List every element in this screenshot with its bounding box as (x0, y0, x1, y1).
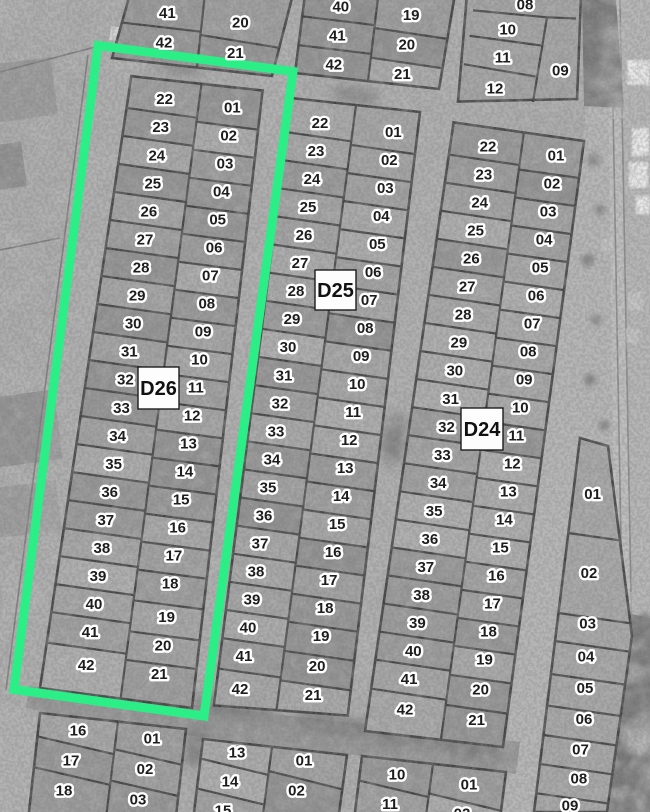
svg-text:14: 14 (222, 773, 239, 790)
svg-text:16: 16 (325, 544, 342, 561)
svg-text:26: 26 (296, 227, 313, 244)
svg-text:05: 05 (577, 680, 594, 697)
svg-text:24: 24 (304, 171, 321, 188)
svg-text:10: 10 (389, 766, 406, 783)
svg-text:15: 15 (329, 516, 346, 533)
svg-text:42: 42 (232, 681, 249, 698)
svg-text:01: 01 (224, 99, 241, 116)
svg-text:10: 10 (499, 22, 516, 39)
svg-text:37: 37 (417, 559, 434, 576)
svg-text:20: 20 (472, 682, 489, 699)
svg-text:06: 06 (365, 264, 382, 281)
svg-text:03: 03 (540, 204, 557, 221)
svg-text:D24: D24 (464, 419, 502, 441)
svg-text:10: 10 (191, 351, 208, 368)
svg-text:04: 04 (213, 183, 230, 200)
svg-text:33: 33 (113, 400, 130, 417)
svg-text:31: 31 (121, 344, 138, 361)
svg-text:07: 07 (524, 316, 541, 333)
svg-text:25: 25 (467, 223, 484, 240)
svg-text:05: 05 (209, 211, 226, 228)
svg-text:11: 11 (495, 50, 511, 67)
svg-text:01: 01 (548, 148, 565, 165)
svg-text:32: 32 (117, 372, 134, 389)
svg-text:22: 22 (312, 115, 329, 132)
svg-text:38: 38 (413, 587, 430, 604)
svg-text:15: 15 (215, 802, 232, 812)
svg-text:21: 21 (468, 712, 485, 729)
svg-text:41: 41 (236, 648, 253, 665)
svg-text:40: 40 (240, 620, 257, 637)
svg-text:24: 24 (471, 194, 488, 211)
svg-text:04: 04 (536, 232, 553, 249)
svg-text:39: 39 (409, 615, 426, 632)
svg-text:17: 17 (321, 572, 338, 589)
svg-text:39: 39 (244, 592, 261, 609)
svg-text:29: 29 (129, 288, 146, 305)
svg-text:24: 24 (148, 147, 165, 164)
svg-text:16: 16 (169, 519, 186, 536)
svg-text:13: 13 (500, 484, 517, 501)
svg-text:15: 15 (173, 491, 190, 508)
svg-text:23: 23 (476, 166, 493, 183)
svg-text:18: 18 (480, 624, 497, 641)
svg-text:17: 17 (63, 752, 80, 769)
svg-text:34: 34 (109, 428, 126, 445)
svg-text:09: 09 (353, 348, 370, 365)
svg-text:41: 41 (401, 671, 418, 688)
svg-text:02: 02 (288, 782, 305, 799)
svg-text:13: 13 (180, 435, 197, 452)
svg-text:10: 10 (512, 400, 529, 417)
svg-text:20: 20 (155, 637, 172, 654)
svg-text:17: 17 (484, 596, 501, 613)
svg-text:03: 03 (130, 791, 147, 808)
svg-text:37: 37 (252, 536, 269, 553)
svg-text:11: 11 (345, 404, 361, 421)
svg-text:13: 13 (337, 460, 354, 477)
svg-text:37: 37 (97, 512, 114, 529)
svg-text:01: 01 (461, 776, 478, 793)
svg-text:08: 08 (571, 770, 588, 787)
svg-text:34: 34 (264, 451, 281, 468)
svg-text:02: 02 (544, 176, 561, 193)
svg-text:09: 09 (562, 797, 579, 812)
svg-text:29: 29 (284, 311, 301, 328)
svg-text:08: 08 (520, 344, 537, 361)
svg-text:35: 35 (260, 480, 277, 497)
svg-text:18: 18 (162, 575, 179, 592)
svg-text:03: 03 (377, 180, 394, 197)
svg-text:01: 01 (144, 730, 161, 747)
svg-text:01: 01 (385, 124, 402, 141)
svg-text:33: 33 (268, 423, 285, 440)
svg-text:02: 02 (454, 805, 471, 812)
svg-text:31: 31 (442, 391, 459, 408)
svg-text:21: 21 (227, 45, 244, 62)
svg-text:02: 02 (137, 761, 154, 778)
svg-text:02: 02 (581, 565, 598, 582)
svg-text:38: 38 (248, 564, 265, 581)
svg-text:07: 07 (572, 741, 589, 758)
svg-text:34: 34 (430, 475, 447, 492)
svg-text:31: 31 (276, 367, 293, 384)
svg-text:27: 27 (137, 232, 154, 249)
svg-text:16: 16 (488, 568, 505, 585)
svg-text:03: 03 (579, 616, 596, 633)
svg-text:35: 35 (105, 456, 122, 473)
svg-text:09: 09 (516, 372, 533, 389)
svg-text:40: 40 (332, 0, 349, 16)
svg-text:40: 40 (405, 643, 422, 660)
svg-text:38: 38 (94, 540, 111, 557)
svg-text:32: 32 (272, 395, 289, 412)
svg-text:42: 42 (325, 56, 342, 73)
svg-text:21: 21 (394, 66, 411, 83)
svg-text:22: 22 (156, 91, 173, 108)
svg-text:30: 30 (446, 363, 463, 380)
svg-text:21: 21 (305, 687, 322, 704)
svg-text:26: 26 (141, 203, 158, 220)
svg-text:42: 42 (78, 657, 95, 674)
svg-text:05: 05 (369, 236, 386, 253)
svg-text:28: 28 (288, 283, 305, 300)
svg-text:04: 04 (373, 208, 390, 225)
svg-text:12: 12 (341, 432, 358, 449)
svg-text:08: 08 (517, 0, 534, 14)
svg-text:D26: D26 (140, 378, 177, 400)
svg-text:26: 26 (463, 251, 480, 268)
svg-text:21: 21 (151, 666, 168, 683)
svg-text:42: 42 (156, 35, 173, 52)
svg-text:40: 40 (86, 596, 103, 613)
svg-text:36: 36 (422, 531, 439, 548)
svg-text:02: 02 (220, 127, 237, 144)
svg-text:19: 19 (313, 628, 330, 645)
svg-text:03: 03 (217, 155, 234, 172)
svg-text:02: 02 (381, 152, 398, 169)
svg-text:14: 14 (177, 463, 194, 480)
svg-text:33: 33 (434, 447, 451, 464)
svg-text:D25: D25 (317, 280, 354, 302)
svg-text:20: 20 (398, 37, 415, 54)
svg-text:27: 27 (459, 279, 476, 296)
svg-text:41: 41 (329, 28, 346, 45)
svg-text:36: 36 (256, 508, 273, 525)
svg-text:09: 09 (195, 323, 212, 340)
svg-text:12: 12 (184, 407, 201, 424)
svg-text:42: 42 (397, 701, 414, 718)
svg-text:13: 13 (229, 744, 246, 761)
svg-text:19: 19 (158, 609, 175, 626)
svg-text:39: 39 (90, 568, 107, 585)
svg-text:41: 41 (82, 624, 99, 641)
svg-text:11: 11 (508, 428, 524, 445)
svg-text:04: 04 (578, 649, 595, 666)
svg-text:09: 09 (552, 63, 569, 80)
svg-text:06: 06 (576, 711, 593, 728)
svg-text:28: 28 (455, 307, 472, 324)
svg-text:08: 08 (198, 295, 215, 312)
svg-text:06: 06 (528, 288, 545, 305)
svg-text:05: 05 (532, 260, 549, 277)
svg-text:07: 07 (361, 292, 378, 309)
svg-text:11: 11 (382, 796, 398, 812)
svg-text:36: 36 (101, 484, 118, 501)
svg-text:16: 16 (70, 722, 87, 739)
svg-text:19: 19 (403, 7, 420, 24)
svg-text:19: 19 (476, 652, 493, 669)
svg-text:18: 18 (56, 782, 73, 799)
svg-text:01: 01 (584, 486, 601, 503)
svg-text:10: 10 (349, 376, 366, 393)
svg-text:35: 35 (426, 503, 443, 520)
svg-text:12: 12 (487, 81, 504, 98)
svg-text:06: 06 (206, 239, 223, 256)
svg-text:01: 01 (296, 752, 313, 769)
svg-text:08: 08 (357, 320, 374, 337)
svg-text:18: 18 (317, 600, 334, 617)
svg-text:12: 12 (504, 456, 521, 473)
svg-text:41: 41 (159, 5, 176, 22)
svg-text:30: 30 (280, 339, 297, 356)
svg-text:11: 11 (188, 379, 204, 396)
svg-text:25: 25 (144, 175, 161, 192)
svg-text:30: 30 (125, 316, 142, 333)
svg-text:14: 14 (496, 512, 513, 529)
svg-text:17: 17 (166, 547, 183, 564)
svg-text:23: 23 (308, 143, 325, 160)
svg-text:20: 20 (309, 658, 326, 675)
svg-text:28: 28 (133, 260, 150, 277)
svg-text:22: 22 (480, 138, 497, 155)
svg-text:15: 15 (492, 540, 509, 557)
svg-text:25: 25 (300, 199, 317, 216)
svg-text:32: 32 (438, 419, 455, 436)
svg-text:20: 20 (232, 14, 249, 31)
svg-text:29: 29 (451, 335, 468, 352)
svg-text:07: 07 (202, 267, 219, 284)
svg-text:27: 27 (292, 255, 309, 272)
svg-text:23: 23 (152, 119, 169, 136)
svg-text:14: 14 (333, 488, 350, 505)
